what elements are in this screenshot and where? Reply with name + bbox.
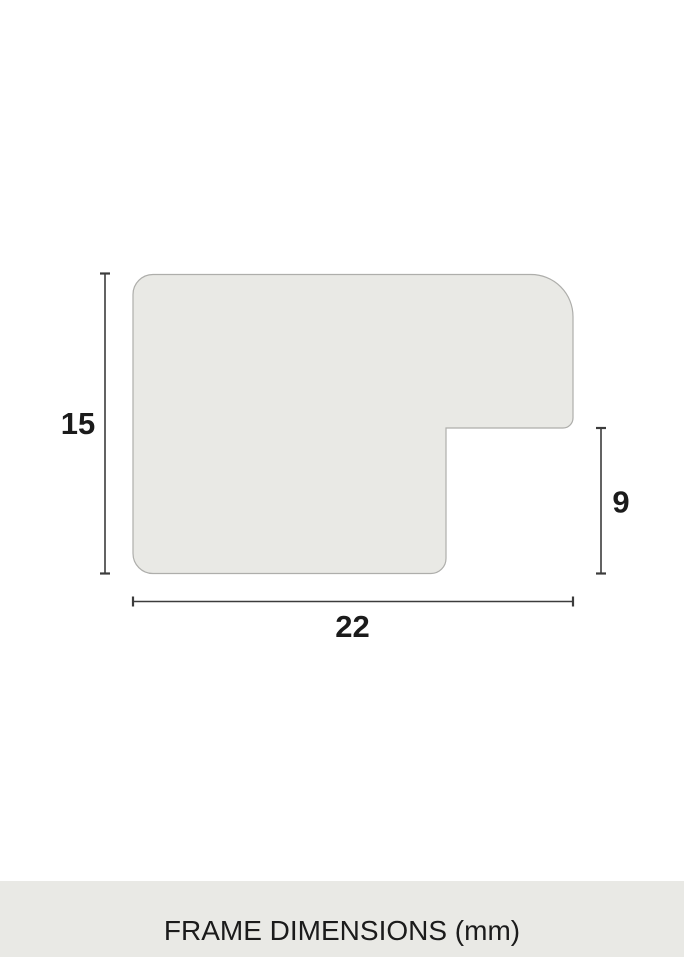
svg-text:FRAME DIMENSIONS (mm): FRAME DIMENSIONS (mm): [164, 915, 520, 946]
svg-text:15: 15: [61, 406, 95, 441]
svg-text:9: 9: [612, 485, 629, 520]
svg-text:22: 22: [335, 609, 369, 644]
